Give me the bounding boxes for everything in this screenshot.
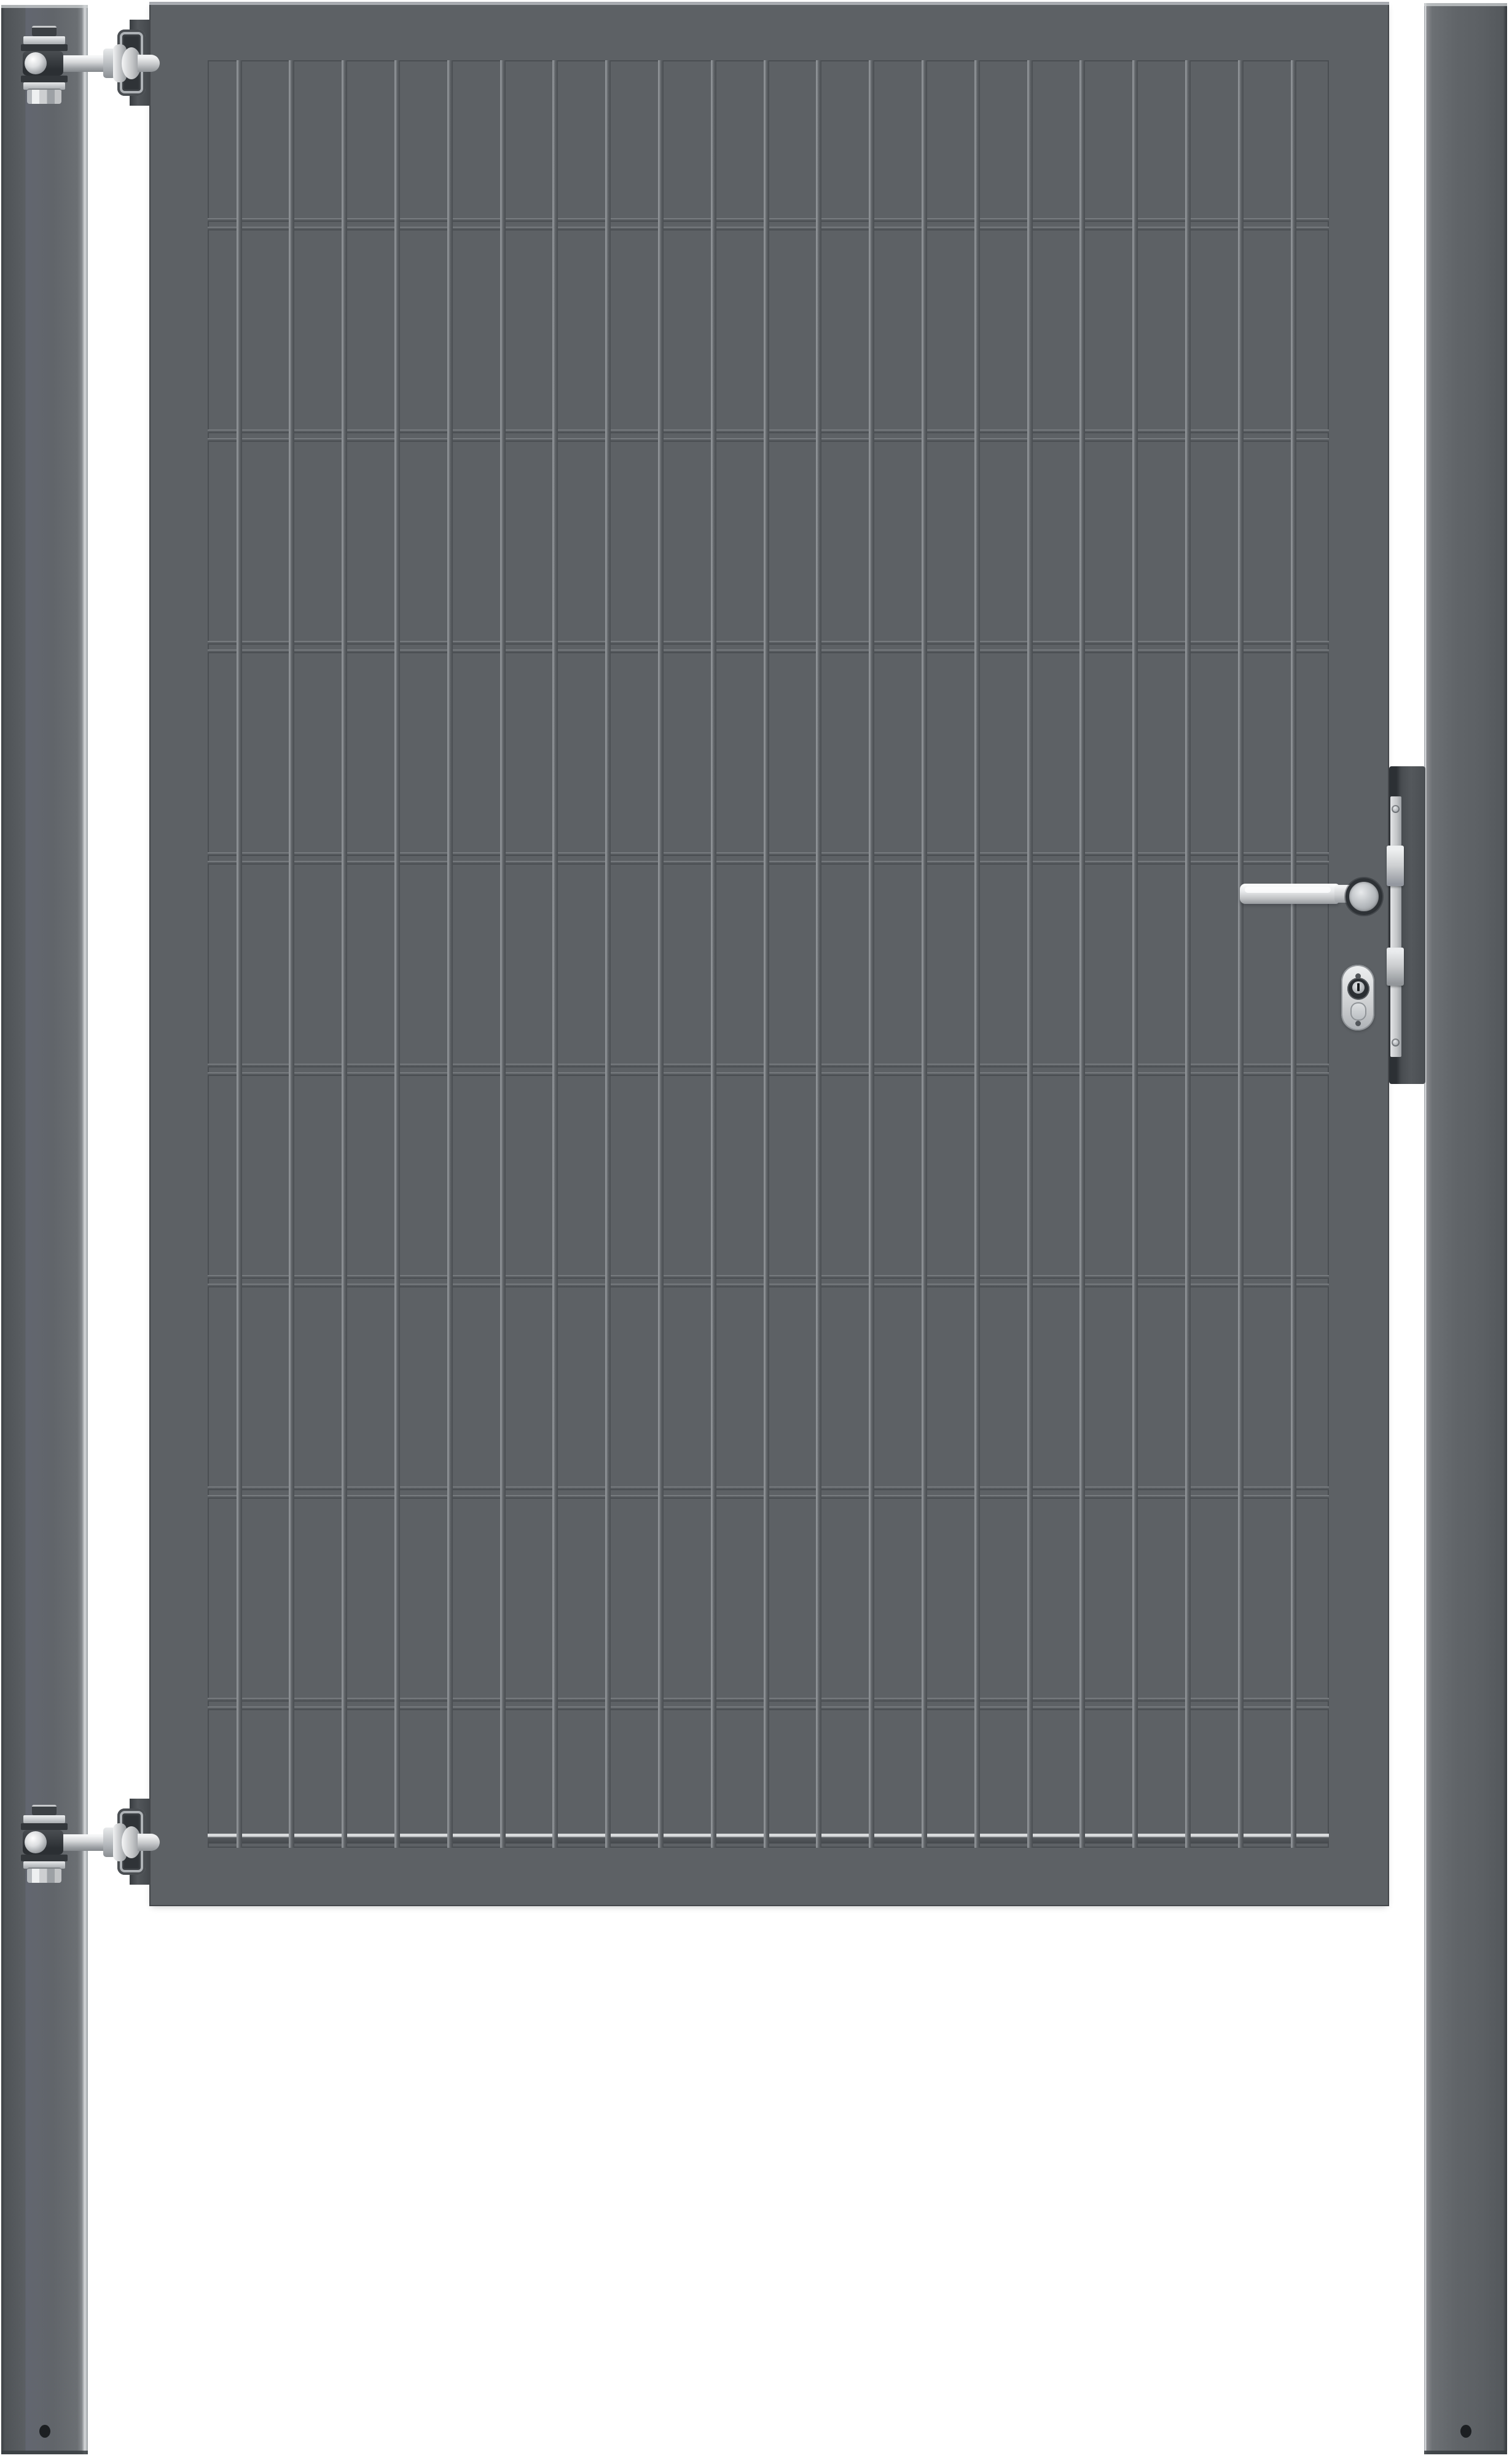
latch-bolt <box>1387 846 1404 886</box>
vertical-bar <box>289 60 294 1848</box>
faceplate-screw <box>1392 1039 1400 1046</box>
post-bottom-edge <box>1 2451 88 2454</box>
vertical-bar <box>816 60 821 1848</box>
hinge-hex-nut <box>27 1867 61 1883</box>
vertical-bar <box>922 60 927 1848</box>
hinge-clamp-plate <box>21 44 68 51</box>
hinge-clamp-plate <box>21 76 68 82</box>
hinge-clamp-plate <box>23 1815 65 1823</box>
vertical-bar <box>974 60 980 1848</box>
escutcheon-screw <box>1355 1021 1361 1026</box>
hinge-ball-end <box>25 52 47 74</box>
vertical-bar <box>237 60 242 1848</box>
bottom-hinge <box>17 1799 178 1885</box>
vertical-bar <box>447 60 453 1848</box>
vertical-bar <box>1079 60 1085 1848</box>
vertical-bar <box>1132 60 1138 1848</box>
vertical-bar <box>711 60 716 1848</box>
hinge-clamp-plate <box>21 1855 68 1861</box>
hinge-clamp-plate <box>23 36 65 44</box>
post-top-edge <box>1 5 88 8</box>
double-bar-mesh-panel <box>208 60 1329 1848</box>
vertical-bar <box>605 60 611 1848</box>
vertical-bar <box>552 60 558 1848</box>
faceplate-screw <box>1392 805 1400 813</box>
hinge-post-lug <box>32 26 57 36</box>
right-post-drain-hole <box>1460 2425 1471 2438</box>
hinge-bolt-stub <box>138 55 160 72</box>
hinge-post-lug <box>32 1805 57 1815</box>
left-post-drain-hole <box>39 2425 50 2438</box>
product-photo-scene <box>0 0 1512 2458</box>
top-hinge <box>17 20 178 106</box>
vertical-bar <box>658 60 664 1848</box>
vertical-bar <box>764 60 769 1848</box>
frame-top-highlight <box>149 2 1389 5</box>
lockset <box>1235 762 1432 1094</box>
keyway-slot <box>1357 983 1360 991</box>
vertical-bar <box>342 60 347 1848</box>
left-fence-post <box>1 5 88 2454</box>
cylinder-body-slot <box>1350 1002 1366 1021</box>
right-fence-post <box>1424 3 1507 2454</box>
hinge-ball-end <box>25 1831 47 1853</box>
vertical-bar <box>394 60 400 1848</box>
lock-faceplate <box>1390 796 1401 1057</box>
vertical-bar <box>1027 60 1033 1848</box>
handle-rose <box>1346 878 1382 915</box>
post-bottom-edge <box>1424 2451 1507 2454</box>
vertical-bar <box>869 60 874 1848</box>
hinge-clamp-plate <box>21 1823 68 1830</box>
post-top-edge <box>1424 3 1507 6</box>
vertical-bar <box>500 60 506 1848</box>
vertical-bar <box>1185 60 1191 1848</box>
hinge-bolt-stub <box>138 1834 160 1851</box>
hinge-hex-nut <box>27 88 61 104</box>
handle-lever-highlight <box>1245 887 1331 893</box>
dead-bolt <box>1387 948 1404 986</box>
